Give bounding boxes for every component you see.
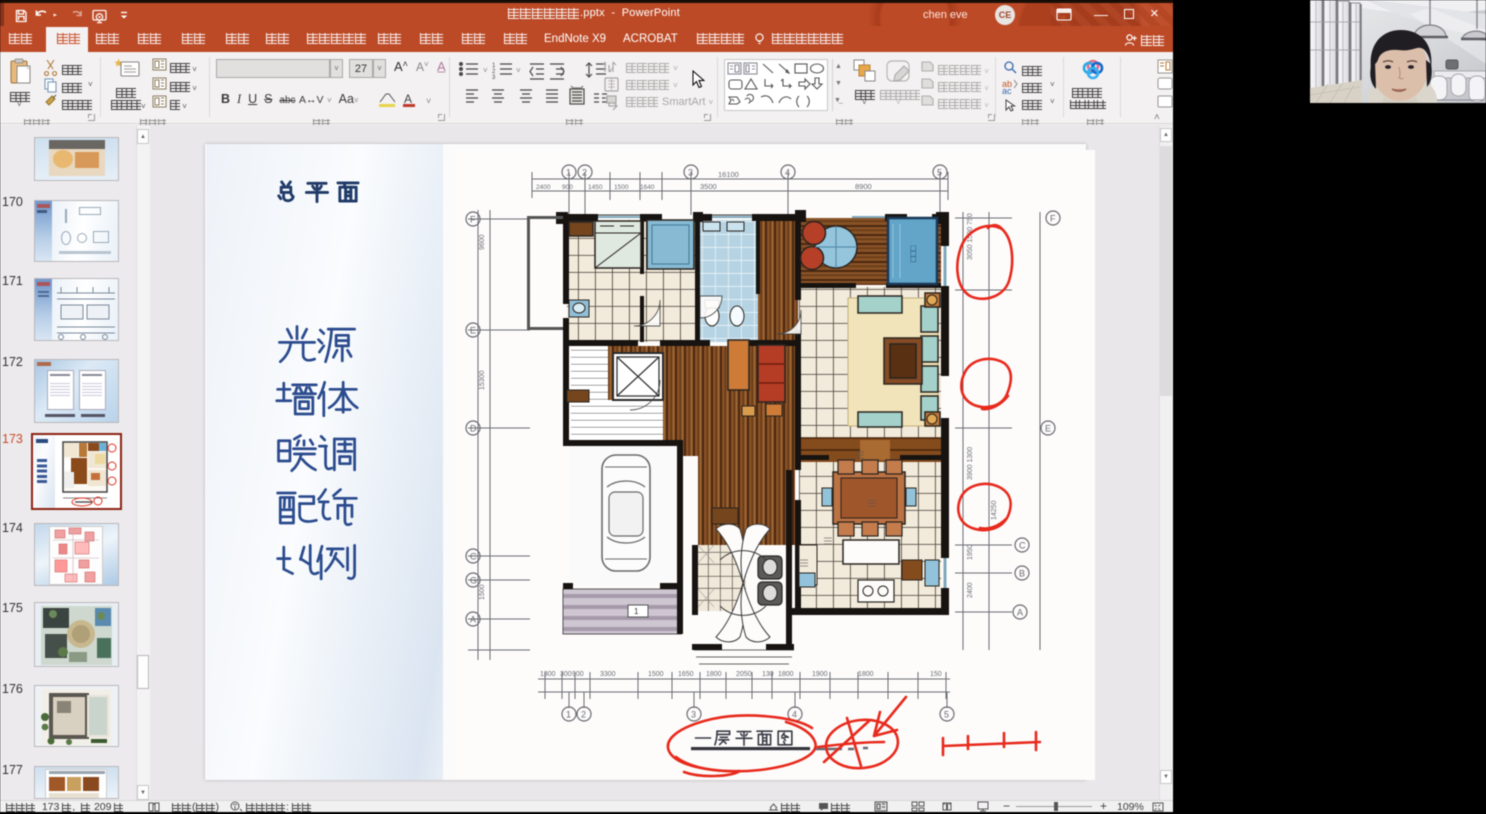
- svg-text:ac: ac: [1002, 86, 1012, 96]
- svg-text:3: 3: [492, 75, 496, 81]
- svg-text:˅: ˅: [483, 66, 488, 75]
- svg-text:˅: ˅: [516, 66, 521, 75]
- svg-text:˅: ˅: [426, 96, 431, 106]
- svg-text:A: A: [404, 92, 412, 106]
